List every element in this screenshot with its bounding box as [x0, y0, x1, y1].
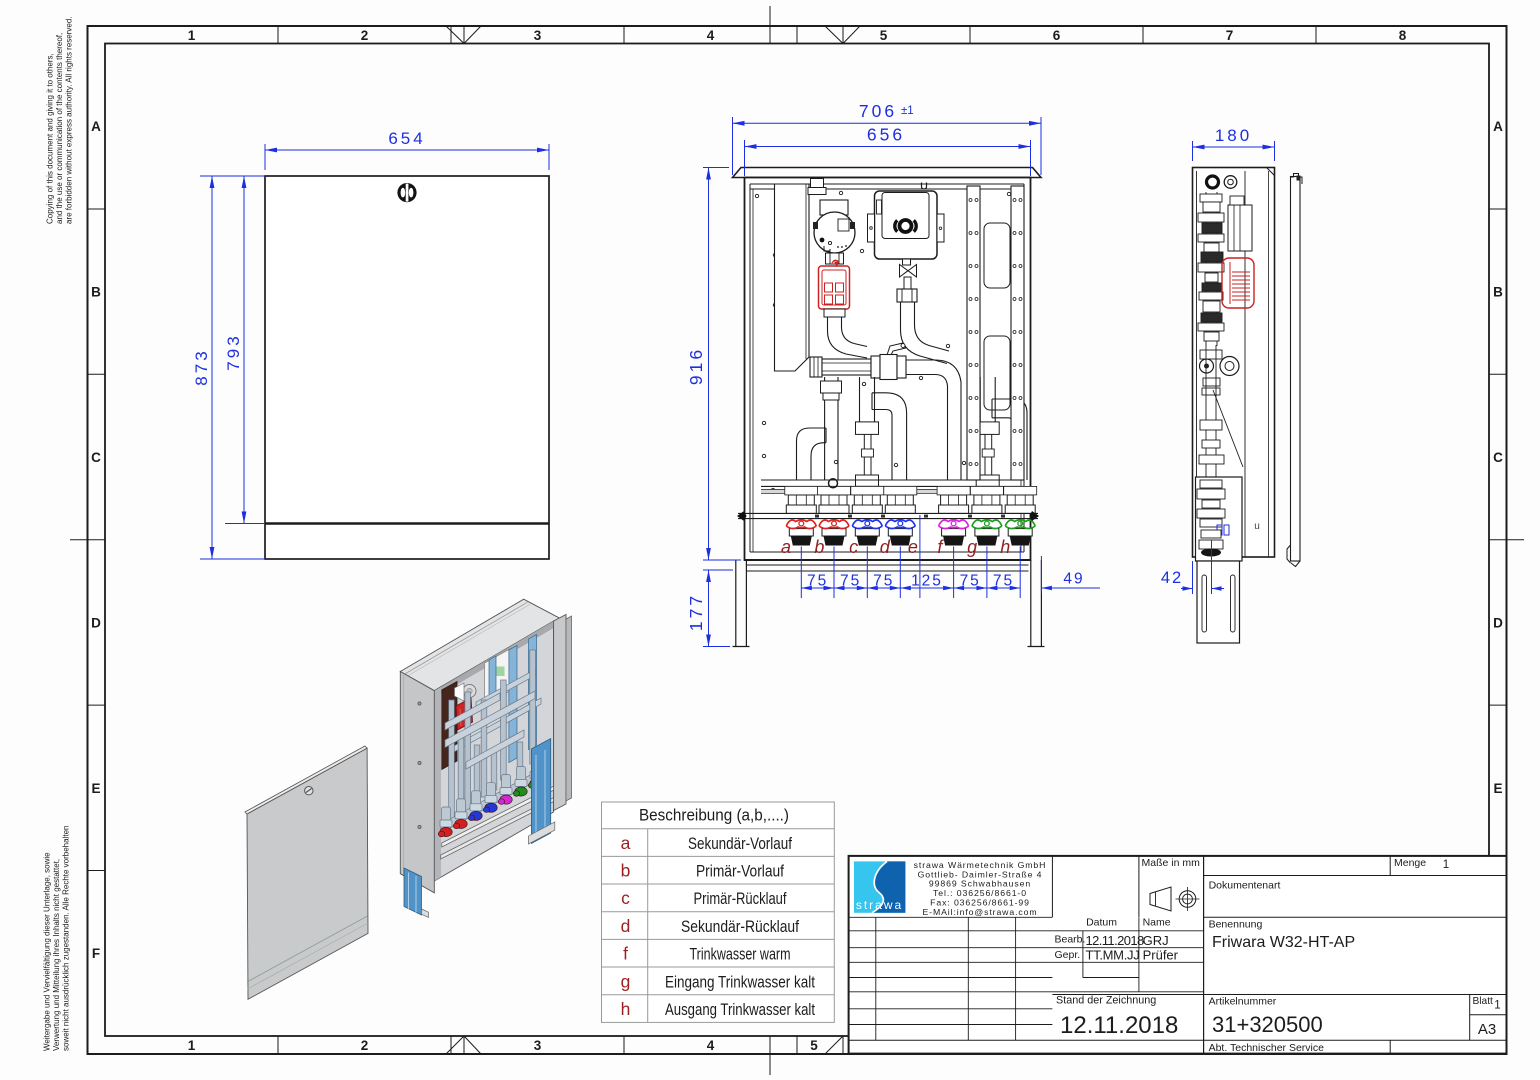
- svg-text:Verwertung und Mitteilung ihre: Verwertung und Mitteilung ihres Inhalts …: [52, 859, 61, 1051]
- svg-text:E-MAil:info@strawa.com: E-MAil:info@strawa.com: [922, 907, 1037, 917]
- svg-text:916: 916: [686, 347, 706, 385]
- svg-text:Trinkwasser warm: Trinkwasser warm: [690, 945, 791, 964]
- svg-text:Beschreibung (a,b,....): Beschreibung (a,b,....): [639, 806, 789, 825]
- svg-text:1: 1: [1443, 859, 1449, 871]
- svg-text:1: 1: [1494, 1000, 1500, 1012]
- svg-text:793: 793: [224, 333, 243, 370]
- svg-text:and the use or communication o: and the use or communication of the cont…: [55, 33, 64, 224]
- svg-text:6: 6: [1053, 28, 1061, 43]
- svg-text:h: h: [621, 999, 631, 1019]
- svg-text:TT.MM.JJ: TT.MM.JJ: [1086, 948, 1140, 963]
- svg-text:g: g: [621, 971, 631, 991]
- svg-text:5: 5: [810, 1038, 818, 1053]
- svg-text:C: C: [91, 450, 101, 465]
- svg-text:E: E: [1493, 781, 1502, 796]
- svg-text:Dokumentenart: Dokumentenart: [1209, 880, 1281, 892]
- svg-text:3: 3: [534, 28, 542, 43]
- svg-text:75: 75: [807, 573, 828, 590]
- svg-text:12.11.2018: 12.11.2018: [1060, 1012, 1178, 1039]
- svg-text:177: 177: [686, 593, 706, 631]
- svg-text:h: h: [1000, 537, 1010, 557]
- svg-text:Primär-Vorlauf: Primär-Vorlauf: [696, 862, 784, 881]
- svg-text:8: 8: [1399, 28, 1407, 43]
- svg-text:a: a: [781, 537, 791, 557]
- svg-text:strawa: strawa: [856, 898, 903, 912]
- svg-text:42: 42: [1161, 569, 1183, 587]
- svg-text:soweit nicht ausdrücklich zuge: soweit nicht ausdrücklich zugestanden. A…: [62, 826, 71, 1051]
- svg-text:f: f: [623, 944, 628, 964]
- svg-text:Sekundär-Rücklauf: Sekundär-Rücklauf: [681, 917, 799, 936]
- svg-text:A: A: [1493, 119, 1503, 134]
- svg-text:D: D: [1493, 615, 1503, 630]
- svg-text:A: A: [91, 119, 101, 134]
- svg-text:2: 2: [361, 1038, 369, 1053]
- svg-text:49: 49: [1063, 571, 1084, 588]
- svg-text:Datum: Datum: [1086, 916, 1117, 928]
- svg-text:Artikelnummer: Artikelnummer: [1209, 996, 1277, 1008]
- svg-text:12.11.2018: 12.11.2018: [1086, 933, 1144, 948]
- svg-text:Maße in mm: Maße in mm: [1142, 857, 1201, 869]
- svg-text:125: 125: [911, 573, 943, 590]
- svg-text:Sekundär-Vorlauf: Sekundär-Vorlauf: [688, 834, 792, 853]
- svg-text:A3: A3: [1478, 1021, 1496, 1038]
- svg-text:Eingang Trinkwasser kalt: Eingang Trinkwasser kalt: [665, 972, 815, 991]
- svg-text:Blatt: Blatt: [1473, 996, 1494, 1007]
- svg-text:Abt. Technischer Service: Abt. Technischer Service: [1209, 1042, 1325, 1054]
- svg-text:75: 75: [993, 573, 1014, 590]
- svg-text:4: 4: [707, 28, 715, 43]
- svg-text:31+320500: 31+320500: [1212, 1012, 1323, 1037]
- svg-text:b: b: [814, 537, 824, 557]
- svg-text:E: E: [91, 781, 100, 796]
- svg-text:4: 4: [707, 1038, 715, 1053]
- svg-text:Primär-Rücklauf: Primär-Rücklauf: [694, 889, 787, 908]
- svg-text:5: 5: [880, 28, 888, 43]
- svg-text:Weitergabe und Vervielfältigun: Weitergabe und Vervielfältigung dieser U…: [43, 852, 52, 1051]
- svg-text:Name: Name: [1143, 916, 1171, 928]
- svg-text:Stand der Zeichnung: Stand der Zeichnung: [1056, 995, 1156, 1007]
- svg-text:GRJ: GRJ: [1143, 933, 1169, 948]
- svg-text:1: 1: [188, 1038, 196, 1053]
- svg-text:are forbidden without express: are forbidden without express authority.…: [65, 16, 74, 224]
- svg-text:1: 1: [188, 28, 196, 43]
- svg-text:2: 2: [361, 28, 369, 43]
- svg-text:180: 180: [1215, 126, 1252, 145]
- svg-text:75: 75: [873, 573, 894, 590]
- svg-text:3: 3: [534, 1038, 542, 1053]
- svg-text:u: u: [1254, 521, 1260, 532]
- svg-text:B: B: [91, 285, 101, 300]
- svg-text:Copying of this document and g: Copying of this document and giving it t…: [46, 53, 55, 224]
- svg-text:75: 75: [960, 573, 981, 590]
- svg-text:±1: ±1: [901, 105, 914, 117]
- svg-text:Friwara W32-HT-AP: Friwara W32-HT-AP: [1212, 934, 1355, 951]
- svg-text:b: b: [621, 861, 631, 881]
- svg-text:a: a: [621, 833, 631, 853]
- svg-text:Prüfer: Prüfer: [1143, 948, 1179, 963]
- svg-text:873: 873: [192, 348, 211, 385]
- svg-text:75: 75: [840, 573, 861, 590]
- svg-text:c: c: [849, 537, 858, 557]
- svg-text:Benennung: Benennung: [1209, 919, 1263, 931]
- svg-text:Ausgang Trinkwasser kalt: Ausgang Trinkwasser kalt: [665, 1000, 815, 1019]
- svg-text:B: B: [1493, 285, 1503, 300]
- svg-text:F: F: [92, 946, 100, 961]
- svg-text:Bearb.: Bearb.: [1055, 934, 1086, 946]
- svg-text:d: d: [621, 916, 631, 936]
- svg-text:656: 656: [867, 125, 905, 145]
- svg-text:Menge: Menge: [1394, 857, 1426, 869]
- svg-text:Gepr.: Gepr.: [1055, 949, 1081, 961]
- svg-text:654: 654: [388, 129, 425, 148]
- svg-text:D: D: [91, 615, 101, 630]
- svg-text:c: c: [621, 888, 630, 908]
- svg-text:7: 7: [1226, 28, 1234, 43]
- svg-text:e: e: [908, 537, 918, 557]
- svg-text:706: 706: [859, 101, 897, 121]
- svg-text:g: g: [967, 537, 977, 557]
- svg-text:C: C: [1493, 450, 1503, 465]
- svg-text:d: d: [880, 537, 891, 557]
